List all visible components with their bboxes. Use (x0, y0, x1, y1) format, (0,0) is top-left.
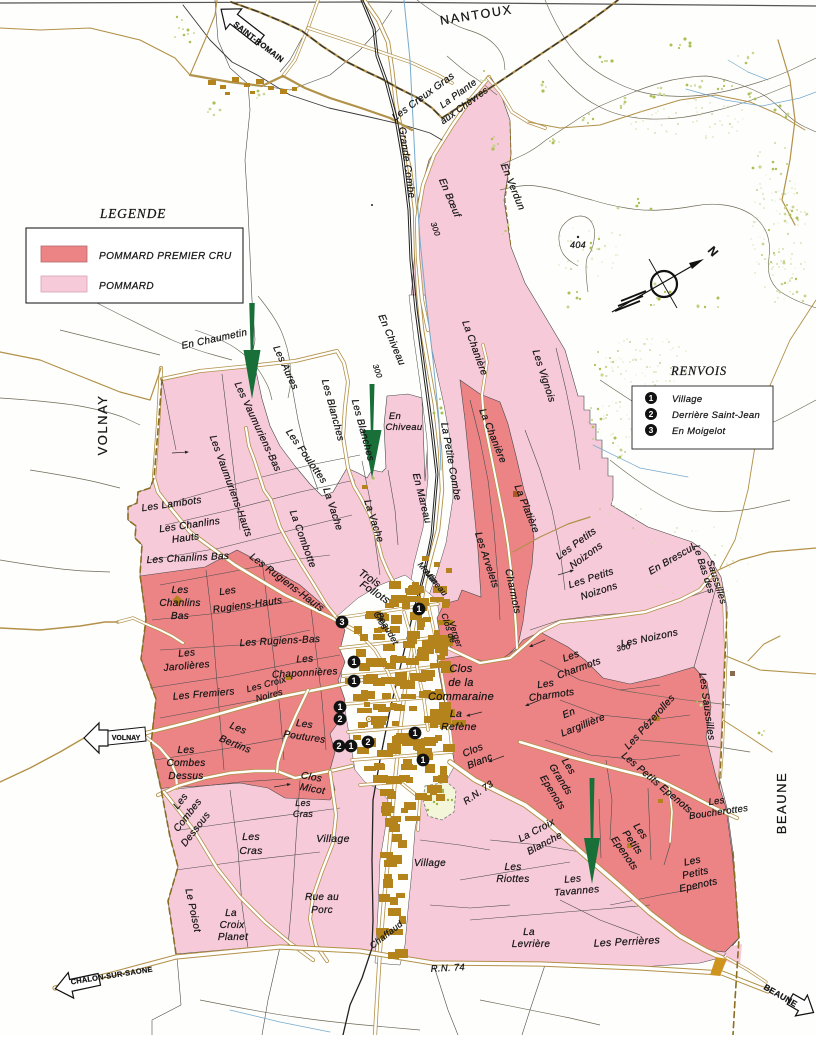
svg-text:R.N. 74: R.N. 74 (430, 962, 465, 975)
svg-text:1: 1 (416, 604, 421, 614)
svg-text:Chiveau: Chiveau (386, 422, 423, 433)
svg-text:Riottes: Riottes (496, 874, 529, 885)
svg-text:1: 1 (351, 657, 356, 667)
svg-text:BEAUNE: BEAUNE (774, 772, 789, 834)
svg-text:2: 2 (649, 409, 654, 419)
svg-text:Cras: Cras (293, 809, 313, 819)
svg-text:1: 1 (420, 755, 425, 765)
svg-text:2: 2 (336, 741, 341, 751)
svg-text:Porc: Porc (311, 905, 333, 916)
svg-text:2: 2 (365, 737, 370, 747)
svg-text:Village: Village (316, 833, 349, 845)
svg-text:Les: Les (295, 718, 313, 731)
svg-text:1: 1 (649, 393, 654, 403)
svg-text:Les: Les (295, 798, 311, 808)
svg-text:3: 3 (339, 617, 344, 627)
svg-text:Les: Les (296, 654, 314, 666)
svg-text:La: La (225, 908, 237, 919)
svg-text:Dessus: Dessus (168, 771, 203, 782)
svg-text:Cras: Cras (239, 845, 263, 857)
svg-text:Derrière Saint-Jean: Derrière Saint-Jean (672, 410, 760, 421)
svg-text:1: 1 (351, 676, 356, 686)
svg-text:1: 1 (412, 728, 417, 738)
svg-text:Planet: Planet (218, 932, 249, 943)
svg-text:2: 2 (337, 714, 342, 724)
svg-text:Les: Les (218, 585, 236, 598)
svg-text:Les: Les (177, 745, 194, 756)
svg-text:LEGENDE: LEGENDE (99, 206, 166, 221)
svg-text:Rue au: Rue au (305, 892, 339, 903)
svg-text:404: 404 (570, 240, 586, 250)
svg-text:Chanlins: Chanlins (159, 598, 200, 609)
svg-text:Les: Les (504, 862, 521, 873)
svg-text:Combes: Combes (166, 758, 205, 769)
svg-text:1: 1 (337, 702, 342, 712)
svg-text:3: 3 (649, 425, 654, 435)
svg-text:Clos: Clos (449, 663, 472, 675)
svg-text:Refène: Refène (441, 721, 477, 733)
svg-text:1: 1 (348, 741, 353, 751)
svg-text:Levrière: Levrière (512, 939, 551, 950)
svg-text:VOLNAY: VOLNAY (112, 735, 141, 742)
svg-text:POMMARD PREMIER CRU: POMMARD PREMIER CRU (99, 251, 232, 262)
svg-text:Les: Les (178, 647, 196, 659)
svg-text:La: La (523, 927, 535, 938)
svg-text:VOLNAY: VOLNAY (95, 395, 110, 456)
svg-text:Les: Les (564, 873, 582, 885)
svg-text:de la: de la (448, 677, 473, 689)
svg-text:Village: Village (672, 394, 702, 405)
svg-text:Commaraine: Commaraine (428, 691, 494, 703)
svg-text:Les: Les (171, 585, 188, 596)
svg-text:Village: Village (414, 858, 446, 869)
svg-text:Les: Les (242, 831, 260, 843)
svg-text:Croix: Croix (220, 920, 246, 931)
svg-text:Bas: Bas (171, 611, 189, 622)
svg-text:RENVOIS: RENVOIS (670, 364, 727, 378)
svg-text:POMMARD: POMMARD (99, 281, 154, 292)
svg-text:La: La (450, 708, 462, 720)
svg-text:En: En (389, 411, 401, 422)
svg-text:En Moigelot: En Moigelot (672, 426, 726, 437)
